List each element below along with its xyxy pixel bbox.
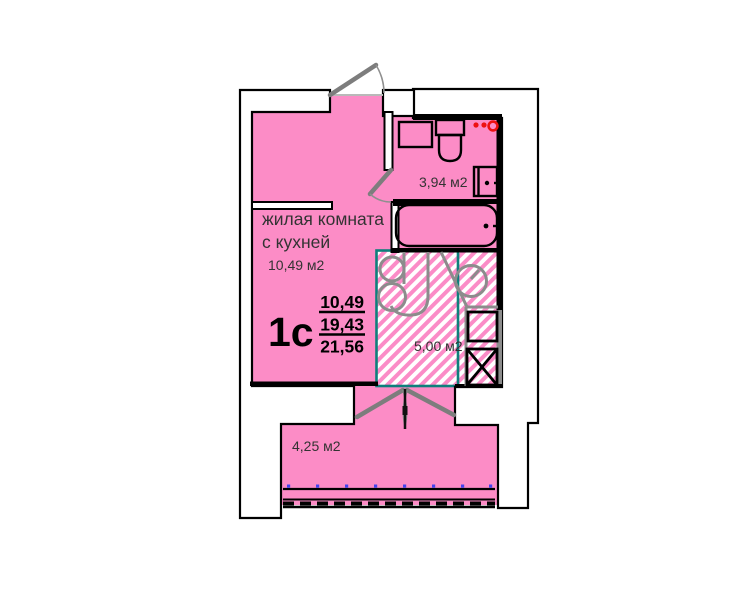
unit-area-total: 21,56 xyxy=(320,337,364,357)
bathroom-door-jamb-wall xyxy=(385,112,393,170)
entrance-door-leaf xyxy=(330,65,376,95)
kitchen-top-wall xyxy=(391,248,502,253)
balcony-door-handle xyxy=(403,406,408,415)
entrance-door xyxy=(330,65,384,95)
unit-area-living: 10,49 xyxy=(320,292,364,312)
vent-dot-icon xyxy=(473,122,478,127)
sink-faucet-icon xyxy=(485,181,489,185)
living-room-area-label: 10,49 м2 xyxy=(268,257,325,273)
living-room-label-line2: с кухней xyxy=(262,232,330,252)
balcony-area-label: 4,25 м2 xyxy=(292,438,341,454)
floor-plan: жилая комната с кухней 10,49 м2 3,94 м2 … xyxy=(0,0,740,600)
unit-right-wall xyxy=(497,114,503,310)
floor-plan-page: жилая комната с кухней 10,49 м2 3,94 м2 … xyxy=(0,0,740,600)
bathroom-area-label: 3,94 м2 xyxy=(419,174,468,190)
balcony-floor-area xyxy=(281,418,497,505)
living-room-label-line1: жилая комната xyxy=(262,209,384,229)
living-room-shelf-niche xyxy=(252,202,332,209)
kitchen-area-label: 5,00 м2 xyxy=(414,338,463,354)
toilet-tub-divider-wall xyxy=(398,199,497,204)
living-bottom-wall xyxy=(250,382,378,387)
unit-type-label: 1с xyxy=(268,309,314,355)
vent-dot-icon xyxy=(481,122,486,127)
entrance-door-swing-arc xyxy=(376,65,384,93)
unit-area-main: 19,43 xyxy=(320,315,364,335)
bathtub-faucet-icon xyxy=(484,224,489,229)
